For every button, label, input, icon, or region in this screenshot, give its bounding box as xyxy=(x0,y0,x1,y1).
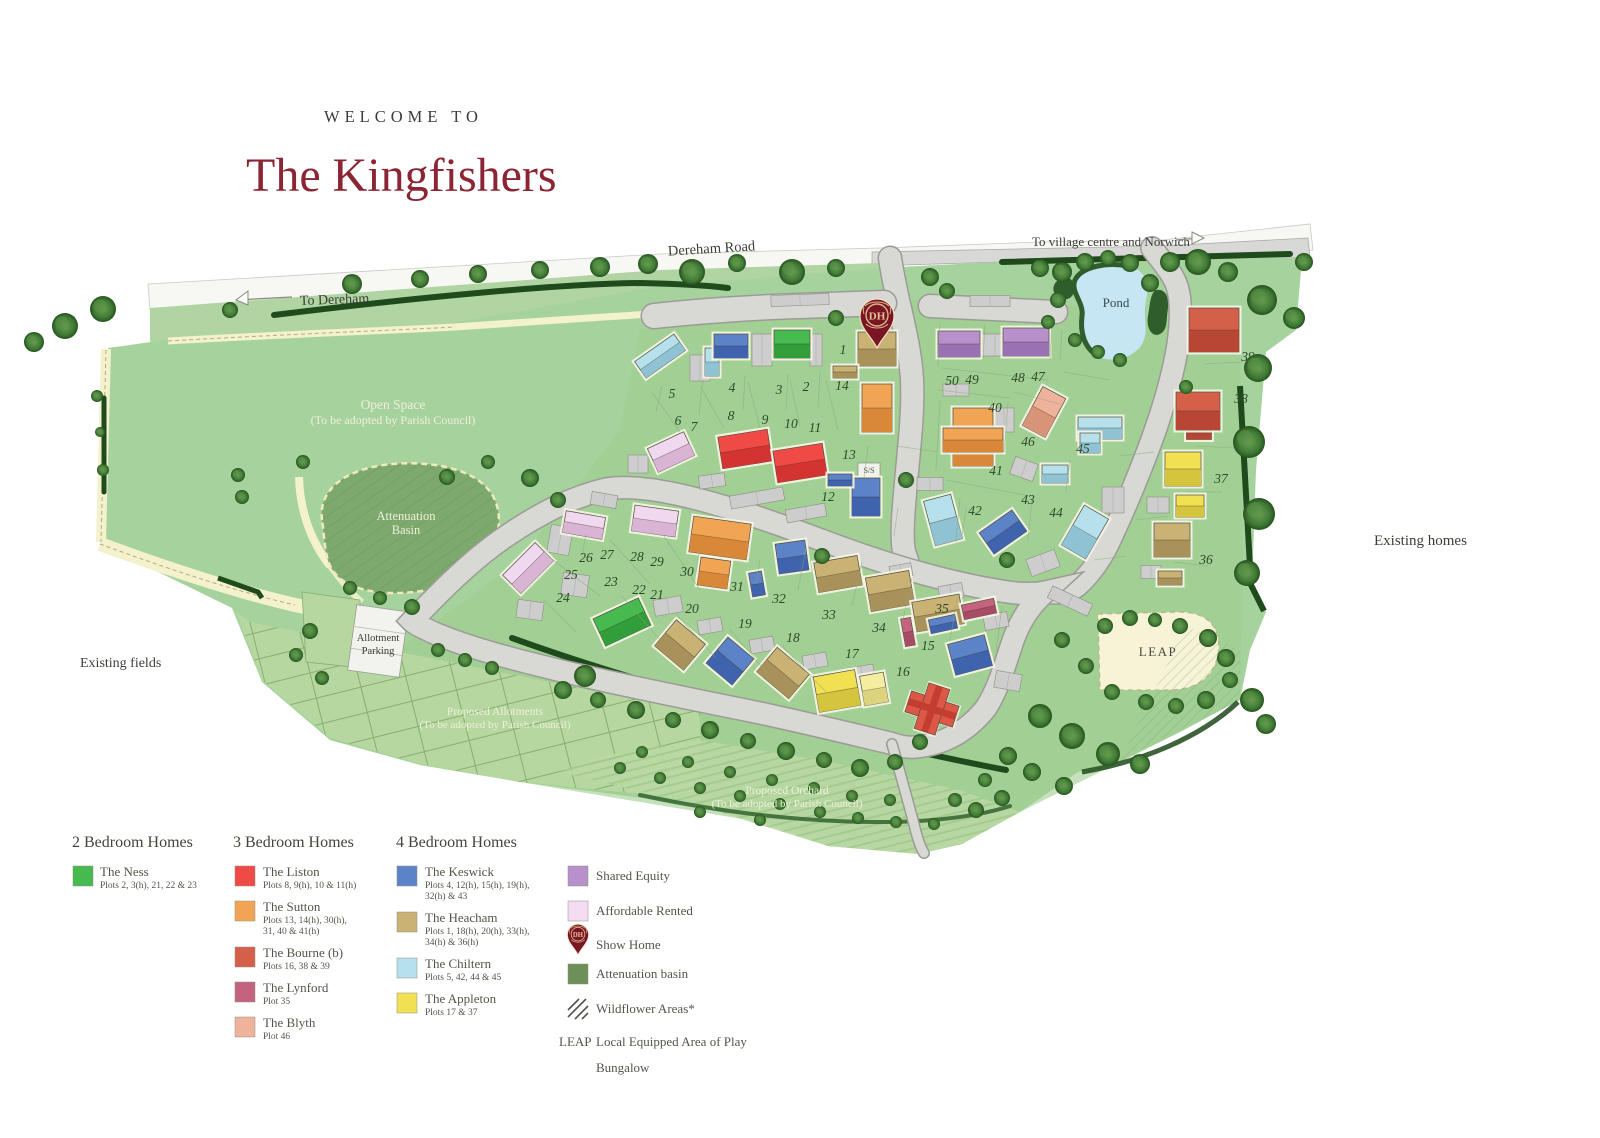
svg-text:2 Bedroom Homes: 2 Bedroom Homes xyxy=(72,834,193,851)
svg-text:30: 30 xyxy=(679,564,694,579)
svg-text:35: 35 xyxy=(934,601,949,616)
svg-text:16: 16 xyxy=(896,664,910,679)
svg-text:Plot 35: Plot 35 xyxy=(263,997,290,1007)
svg-text:10: 10 xyxy=(784,416,798,431)
svg-text:38: 38 xyxy=(1233,391,1248,406)
svg-text:Local Equipped Area of Play: Local Equipped Area of Play xyxy=(596,1034,747,1049)
svg-text:19: 19 xyxy=(738,616,752,631)
svg-text:DH: DH xyxy=(573,932,584,939)
svg-text:Basin: Basin xyxy=(392,523,421,537)
svg-text:49: 49 xyxy=(965,372,979,387)
svg-text:Show Home: Show Home xyxy=(596,937,661,952)
svg-text:31, 40 & 41(h): 31, 40 & 41(h) xyxy=(263,926,319,937)
svg-text:The Blyth: The Blyth xyxy=(263,1015,316,1030)
svg-text:22: 22 xyxy=(632,582,646,597)
svg-text:1: 1 xyxy=(840,342,847,357)
svg-text:48: 48 xyxy=(1011,370,1025,385)
svg-text:40: 40 xyxy=(988,400,1002,415)
svg-text:6: 6 xyxy=(675,413,682,428)
svg-text:44: 44 xyxy=(1049,505,1063,520)
svg-text:The Ness: The Ness xyxy=(100,864,149,879)
svg-text:36: 36 xyxy=(1198,552,1213,567)
svg-text:47: 47 xyxy=(1031,369,1046,384)
svg-text:The Chiltern: The Chiltern xyxy=(425,956,492,971)
svg-text:37: 37 xyxy=(1213,471,1229,486)
svg-text:41: 41 xyxy=(989,463,1003,478)
svg-text:Allotment: Allotment xyxy=(357,633,400,644)
svg-text:(To be adopted by Parish Counc: (To be adopted by Parish Council) xyxy=(711,798,862,810)
svg-text:32: 32 xyxy=(771,591,786,606)
svg-text:Existing homes: Existing homes xyxy=(1374,533,1467,549)
svg-text:3: 3 xyxy=(775,382,783,397)
svg-text:Parking: Parking xyxy=(362,646,395,657)
svg-text:The Kingfishers: The Kingfishers xyxy=(246,149,557,202)
svg-text:Pond: Pond xyxy=(1103,295,1130,310)
svg-text:Bungalow: Bungalow xyxy=(596,1060,650,1075)
svg-text:13: 13 xyxy=(842,447,856,462)
svg-text:26: 26 xyxy=(579,550,593,565)
svg-text:Plots 5, 42, 44 & 45: Plots 5, 42, 44 & 45 xyxy=(425,973,502,983)
svg-text:The Sutton: The Sutton xyxy=(263,899,321,914)
svg-text:4: 4 xyxy=(729,380,736,395)
svg-text:Wildflower Areas*: Wildflower Areas* xyxy=(596,1001,695,1016)
svg-text:Plots 1, 18(h), 20(h), 33(h),: Plots 1, 18(h), 20(h), 33(h), xyxy=(425,926,530,937)
svg-text:Attenuation: Attenuation xyxy=(376,509,436,523)
svg-text:29: 29 xyxy=(650,554,664,569)
svg-text:20: 20 xyxy=(685,601,699,616)
svg-text:50: 50 xyxy=(945,373,959,388)
svg-text:21: 21 xyxy=(650,587,664,602)
svg-text:18: 18 xyxy=(786,630,800,645)
svg-text:12: 12 xyxy=(821,489,835,504)
svg-text:Plots 13, 14(h), 30(h),: Plots 13, 14(h), 30(h), xyxy=(263,915,347,926)
svg-text:27: 27 xyxy=(600,547,615,562)
svg-text:3 Bedroom Homes: 3 Bedroom Homes xyxy=(233,834,354,851)
svg-text:2: 2 xyxy=(803,379,810,394)
svg-text:34(h) & 36(h): 34(h) & 36(h) xyxy=(425,937,478,948)
svg-text:33: 33 xyxy=(821,607,836,622)
svg-text:42: 42 xyxy=(968,503,982,518)
svg-text:Plots 4, 12(h), 15(h), 19(h),: Plots 4, 12(h), 15(h), 19(h), xyxy=(425,880,530,891)
svg-text:8: 8 xyxy=(728,408,735,423)
svg-text:To village centre and Norwich: To village centre and Norwich xyxy=(1032,234,1190,249)
svg-text:Existing fields: Existing fields xyxy=(80,656,161,671)
svg-text:The Heacham: The Heacham xyxy=(425,910,498,925)
svg-text:Open Space: Open Space xyxy=(361,397,426,412)
svg-text:32(h) & 43: 32(h) & 43 xyxy=(425,891,467,902)
svg-text:24: 24 xyxy=(556,590,570,605)
svg-text:The Bourne (b): The Bourne (b) xyxy=(263,945,343,960)
svg-text:The Appleton: The Appleton xyxy=(425,991,497,1006)
svg-text:Attenuation basin: Attenuation basin xyxy=(596,966,689,981)
svg-text:43: 43 xyxy=(1021,492,1035,507)
svg-text:31: 31 xyxy=(729,579,744,594)
svg-text:34: 34 xyxy=(871,620,886,635)
svg-text:The Lynford: The Lynford xyxy=(263,980,329,995)
svg-text:LEAP: LEAP xyxy=(559,1034,592,1049)
svg-text:46: 46 xyxy=(1021,434,1035,449)
svg-text:Plots 17 & 37: Plots 17 & 37 xyxy=(425,1008,478,1018)
svg-text:Plots 8, 9(h), 10 & 11(h): Plots 8, 9(h), 10 & 11(h) xyxy=(263,880,356,891)
svg-text:(To be adopted by Parish Counc: (To be adopted by Parish Council) xyxy=(419,719,570,731)
svg-text:To Dereham: To Dereham xyxy=(300,292,370,309)
svg-text:(To be adopted by Parish Counc: (To be adopted by Parish Council) xyxy=(311,413,476,427)
svg-text:45: 45 xyxy=(1076,441,1090,456)
svg-text:The Liston: The Liston xyxy=(263,864,320,879)
svg-text:Proposed Orchard: Proposed Orchard xyxy=(745,785,829,797)
svg-text:15: 15 xyxy=(921,638,935,653)
svg-text:The Keswick: The Keswick xyxy=(425,864,494,879)
svg-text:25: 25 xyxy=(564,567,578,582)
svg-text:WELCOME TO: WELCOME TO xyxy=(324,107,483,126)
svg-text:5: 5 xyxy=(669,386,676,401)
svg-text:Plot 46: Plot 46 xyxy=(263,1032,290,1042)
svg-text:23: 23 xyxy=(604,574,618,589)
svg-text:Plots 16, 38 & 39: Plots 16, 38 & 39 xyxy=(263,962,330,972)
svg-text:Proposed Allotments: Proposed Allotments xyxy=(447,706,544,718)
svg-text:14: 14 xyxy=(835,378,849,393)
svg-text:Affordable Rented: Affordable Rented xyxy=(596,903,693,918)
svg-text:17: 17 xyxy=(845,646,860,661)
svg-text:Shared Equity: Shared Equity xyxy=(596,868,671,883)
svg-text:Plots 2, 3(h), 21, 22 & 23: Plots 2, 3(h), 21, 22 & 23 xyxy=(100,880,197,891)
svg-text:11: 11 xyxy=(809,420,822,435)
svg-text:4 Bedroom Homes: 4 Bedroom Homes xyxy=(396,834,517,851)
svg-text:9: 9 xyxy=(762,412,769,427)
svg-text:DH: DH xyxy=(869,311,886,323)
svg-text:28: 28 xyxy=(630,549,644,564)
